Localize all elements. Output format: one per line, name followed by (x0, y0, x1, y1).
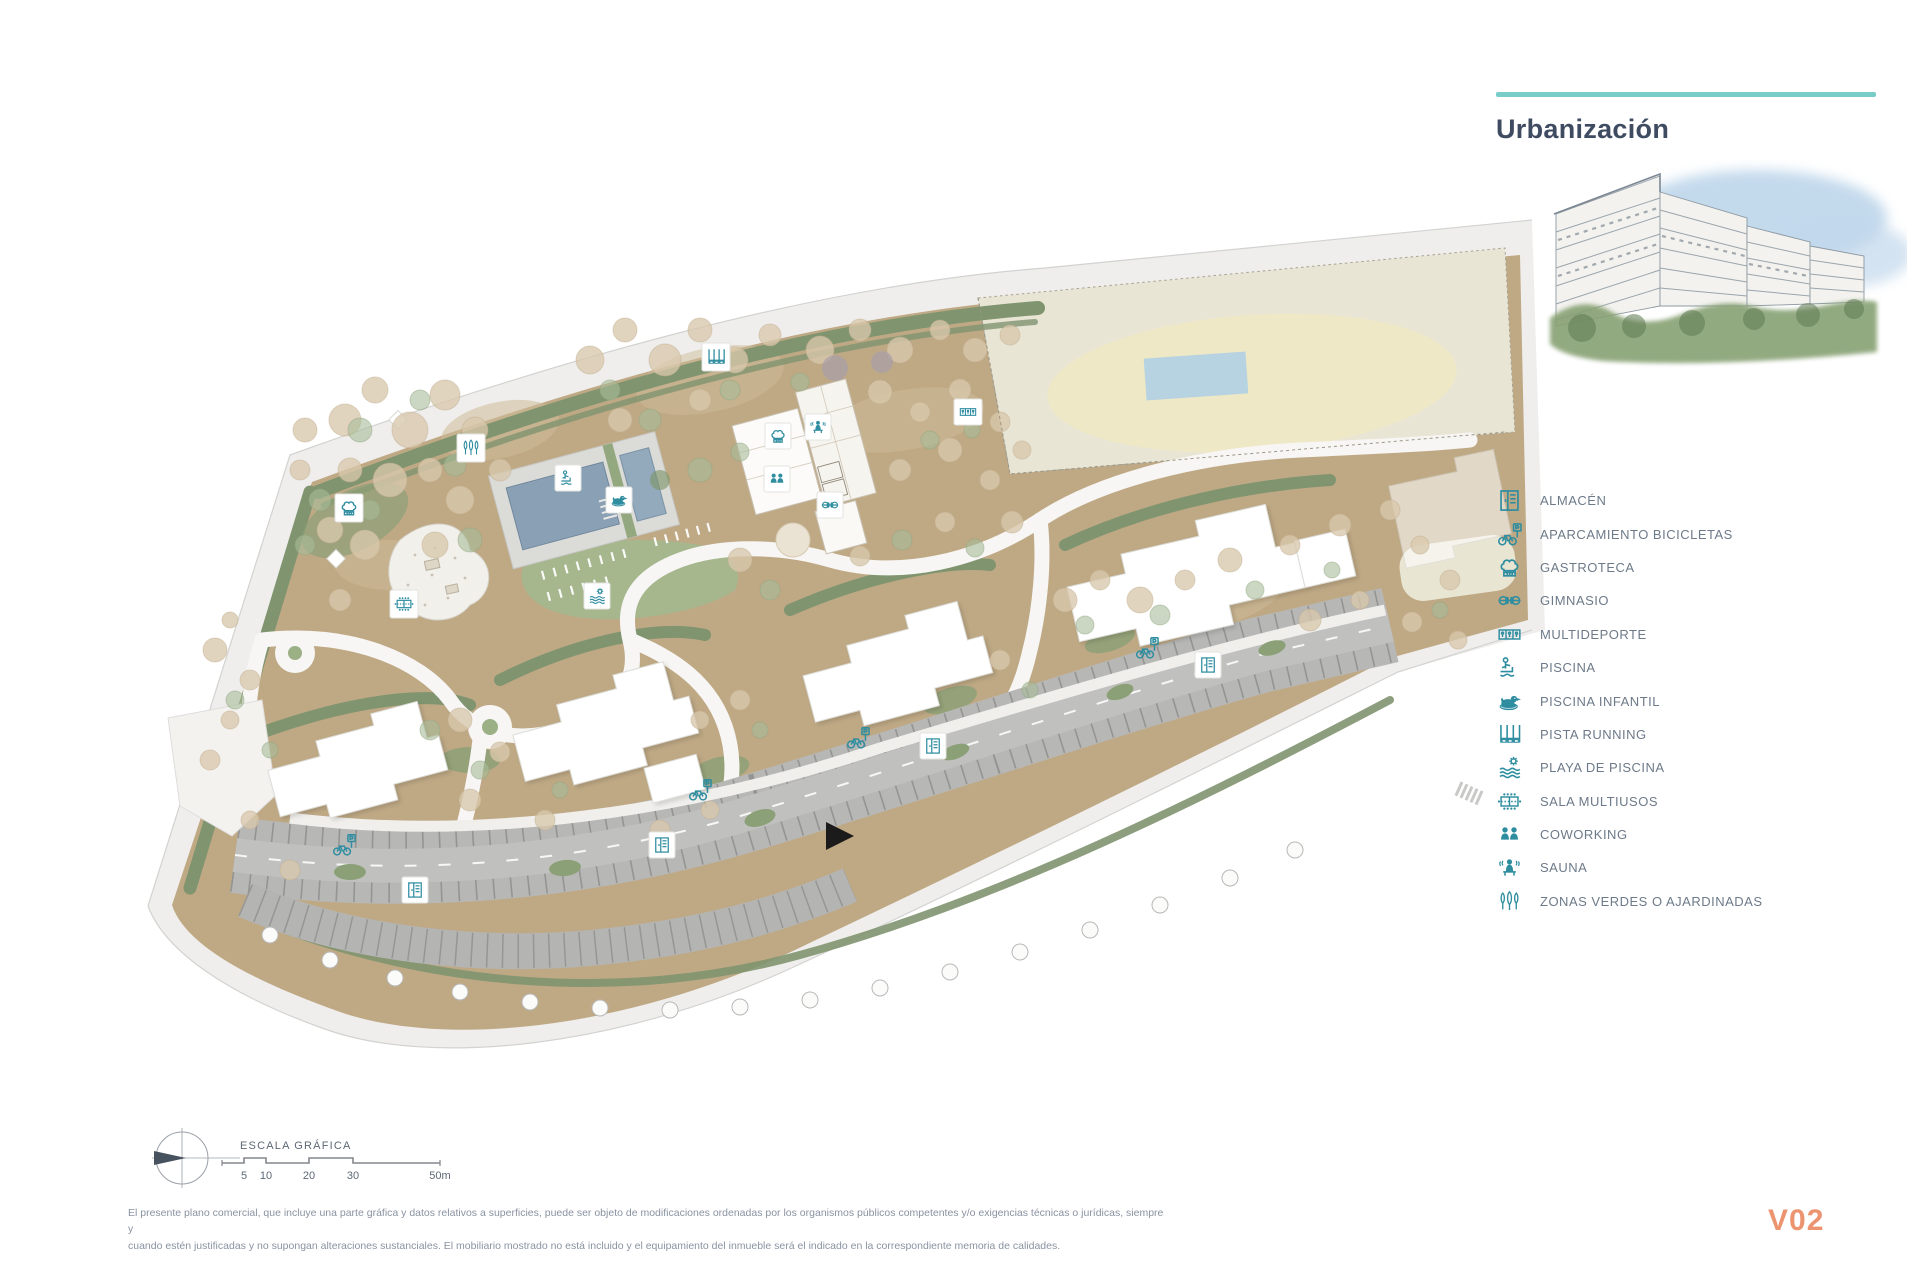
scale-tick: 5 (241, 1170, 247, 1182)
legend-label: PISCINA INFANTIL (1540, 694, 1660, 709)
duck-float-icon (1496, 686, 1530, 716)
map-badge-gastroteca-club (765, 423, 791, 449)
map-badge-coworking (764, 466, 790, 492)
map-badge-almacen-3 (920, 733, 946, 759)
legend-item-zonas-verdes: ZONAS VERDES O AJARDINADAS (1496, 885, 1896, 918)
legend-label: SAUNA (1540, 860, 1587, 875)
legend-item-almacen: ALMACÉN (1496, 484, 1896, 517)
storage-icon (1496, 486, 1530, 516)
map-badge-sauna (805, 414, 831, 440)
legend-item-sala-multiusos: SALA MULTIUSOS (1496, 785, 1896, 818)
map-badge-gimnasio (817, 492, 843, 518)
sauna-icon (1496, 853, 1530, 883)
map-badge-playa-piscina (584, 583, 610, 609)
legend-label: COWORKING (1540, 827, 1628, 842)
map-badge-almacen-4 (1195, 652, 1221, 678)
coworking-icon (1496, 820, 1530, 850)
plan-sheet: Urbanización ALMACÉN APARCAMIENTO BICICL… (0, 0, 1920, 1280)
legend-label: PISTA RUNNING (1540, 727, 1647, 742)
disclaimer-line-1: El presente plano comercial, que incluye… (128, 1205, 1168, 1238)
scale-tick: 10 (260, 1170, 272, 1182)
legend-label: MULTIDEPORTE (1540, 627, 1647, 642)
legend-label: ALMACÉN (1540, 493, 1606, 508)
page-title: Urbanización (1496, 114, 1669, 145)
building-rendering (1542, 156, 1907, 370)
legend-item-sauna: SAUNA (1496, 851, 1896, 884)
legend-item-piscina-infantil: PISCINA INFANTIL (1496, 684, 1896, 717)
map-badge-piscina-infantil (606, 487, 632, 513)
scale-tick: 20 (303, 1170, 315, 1182)
map-badge-sala-multiusos (390, 590, 418, 618)
multiuse-room-icon (1496, 786, 1530, 816)
sheet-code: V02 (1768, 1204, 1824, 1238)
legend-label: GIMNASIO (1540, 593, 1609, 608)
map-badge-multideporte (954, 399, 982, 425)
bicycle-parking-icon (1496, 519, 1530, 549)
plaza-circle (776, 523, 810, 557)
scale-tick: 50m (429, 1170, 450, 1182)
scale-bar (222, 1158, 440, 1166)
dumbbell-icon (1496, 586, 1530, 616)
legend-item-gastroteca: GASTROTECA (1496, 551, 1896, 584)
pond (1144, 351, 1249, 400)
legend: ALMACÉN APARCAMIENTO BICICLETAS GASTROTE… (1496, 484, 1896, 918)
sports-court-icon (1496, 619, 1530, 649)
legend-label: APARCAMIENTO BICICLETAS (1540, 527, 1733, 542)
running-track-icon (1496, 719, 1530, 749)
legend-item-coworking: COWORKING (1496, 818, 1896, 851)
map-badge-zonas-verdes (457, 434, 485, 462)
legend-item-multideporte: MULTIDEPORTE (1496, 618, 1896, 651)
legend-item-playa-de-piscina: PLAYA DE PISCINA (1496, 751, 1896, 784)
map-badge-pista-running (702, 343, 730, 371)
trees-icon (1496, 886, 1530, 916)
legend-label: SALA MULTIUSOS (1540, 794, 1658, 809)
legend-item-piscina: PISCINA (1496, 651, 1896, 684)
accent-divider (1496, 92, 1876, 97)
chef-hat-icon (1496, 552, 1530, 582)
map-badge-piscina (555, 465, 581, 491)
legend-label: PLAYA DE PISCINA (1540, 760, 1665, 775)
disclaimer-line-2: cuando estén justificadas y no supongan … (128, 1238, 1168, 1254)
scale-title: ESCALA GRÁFICA (240, 1140, 352, 1152)
map-badge-gastroteca-west (335, 494, 363, 522)
legend-label: PISCINA (1540, 660, 1596, 675)
legend-item-gimnasio: GIMNASIO (1496, 584, 1896, 617)
legend-item-pista-running: PISTA RUNNING (1496, 718, 1896, 751)
pool-icon (1496, 653, 1530, 683)
legend-label: GASTROTECA (1540, 560, 1635, 575)
map-badge-almacen-1 (402, 877, 428, 903)
legend-label: ZONAS VERDES O AJARDINADAS (1540, 894, 1763, 909)
compass (152, 1128, 240, 1188)
legend-item-aparcamiento-bicicletas: APARCAMIENTO BICICLETAS (1496, 517, 1896, 550)
scale-tick: 30 (347, 1170, 359, 1182)
map-badge-almacen-2 (649, 832, 675, 858)
disclaimer: El presente plano comercial, que incluye… (128, 1205, 1168, 1254)
sun-waves-icon (1496, 753, 1530, 783)
